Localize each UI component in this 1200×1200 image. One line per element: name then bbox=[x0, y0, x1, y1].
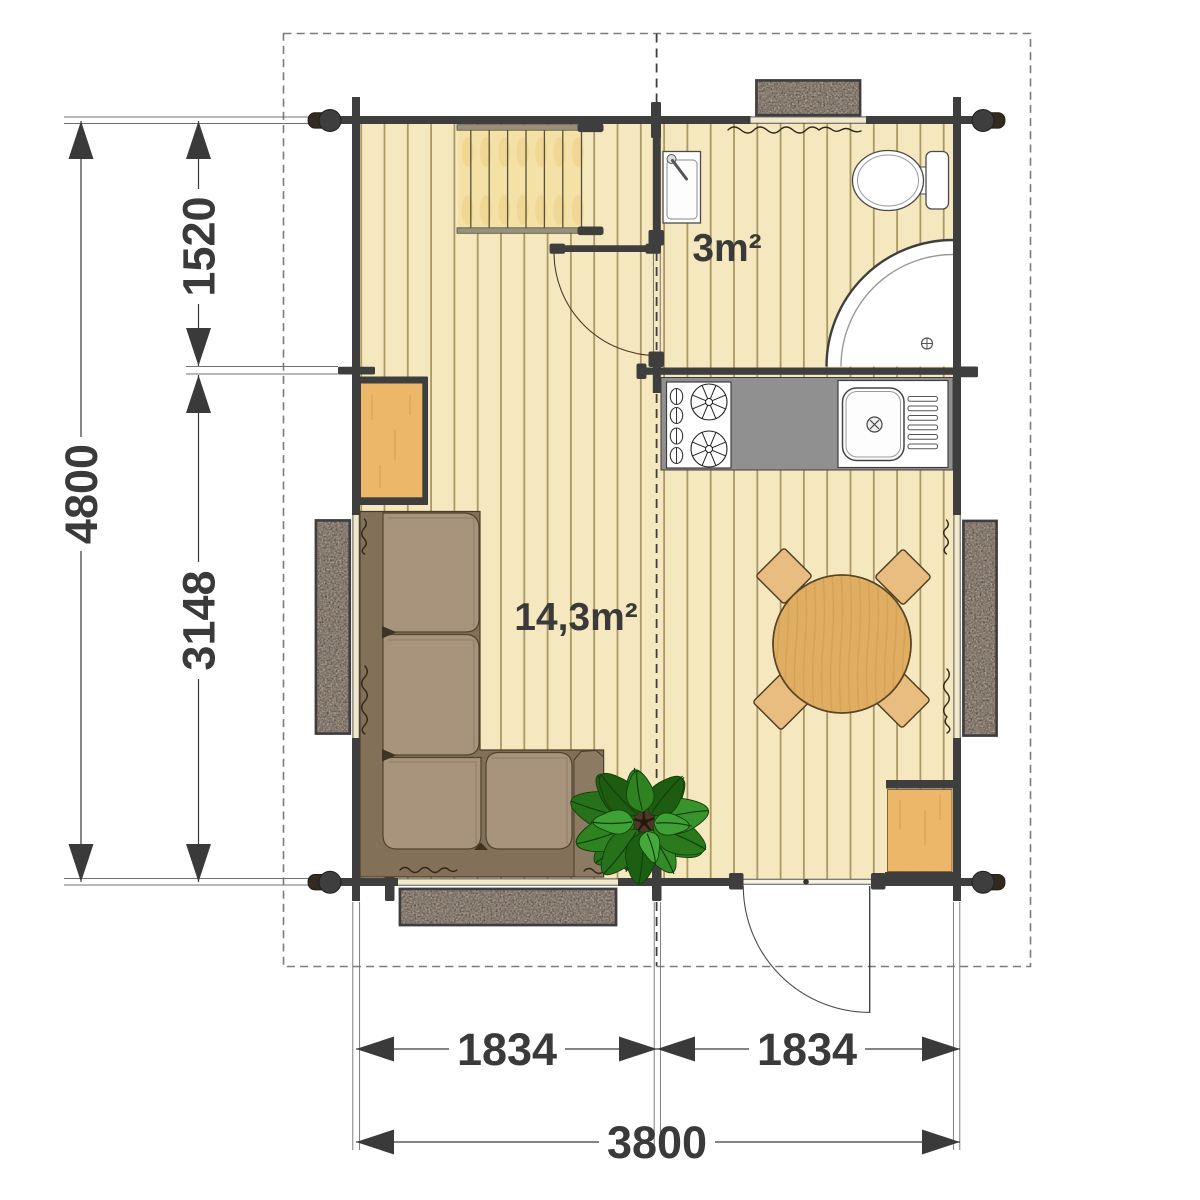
svg-text:3800: 3800 bbox=[607, 1117, 707, 1168]
svg-text:14,3m²: 14,3m² bbox=[514, 596, 638, 639]
svg-text:4800: 4800 bbox=[56, 444, 107, 544]
svg-text:1834: 1834 bbox=[757, 1024, 857, 1075]
svg-text:1520: 1520 bbox=[174, 196, 225, 296]
svg-text:3m²: 3m² bbox=[692, 227, 761, 270]
svg-text:3148: 3148 bbox=[174, 570, 225, 670]
svg-text:1834: 1834 bbox=[457, 1024, 557, 1075]
